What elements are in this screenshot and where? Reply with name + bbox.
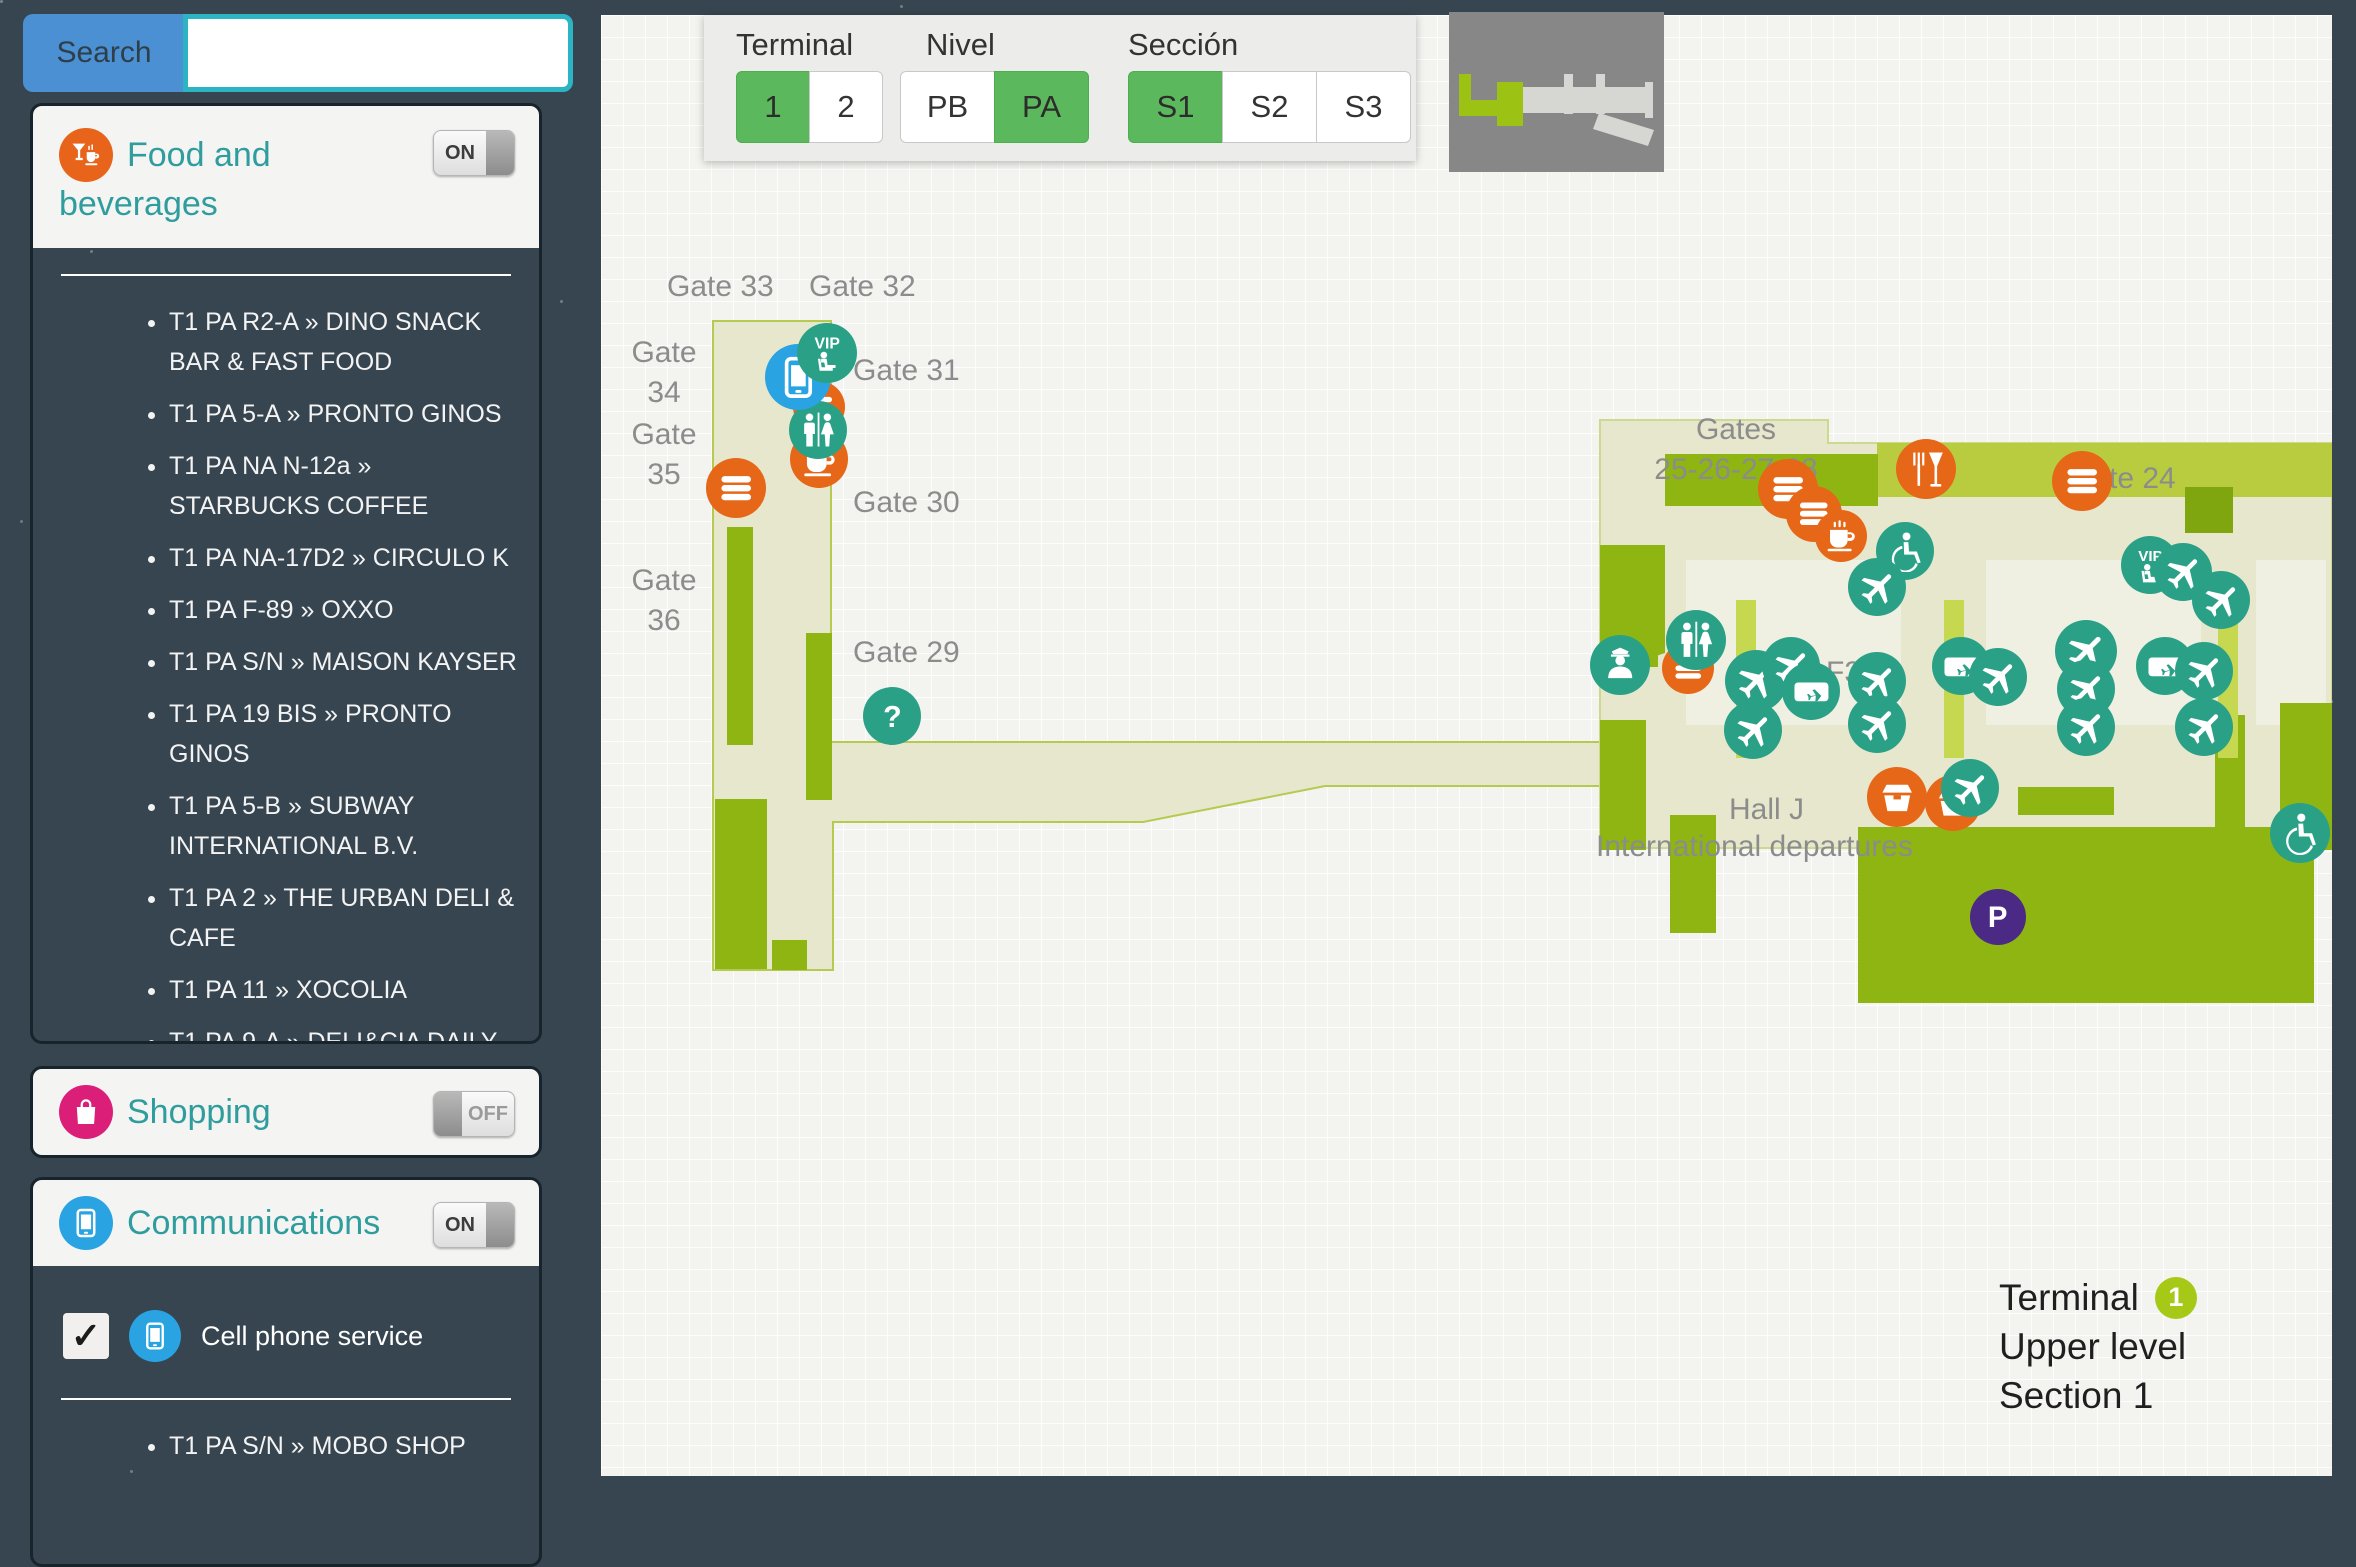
category-title-shopping: Shopping	[127, 1093, 271, 1131]
divider	[61, 1398, 511, 1400]
gate-33-label: Gate 33	[667, 267, 774, 307]
poi-list-item: T1 PA 5-A » PRONTO GINOS	[169, 394, 521, 434]
burger-icon[interactable]	[706, 458, 766, 518]
international-departures-label: International departures	[1596, 827, 1913, 867]
shopping-toggle[interactable]: OFF	[433, 1091, 515, 1137]
airport-map-app: { "search": {"button_label": "Search", "…	[0, 0, 2356, 1490]
svg-text:?: ?	[883, 700, 902, 734]
poi-list-item: T1 PA NA N-12a » STARBUCKS COFFEE	[169, 446, 521, 526]
nivel-group-label: Nivel	[926, 27, 995, 63]
svg-text:VIP: VIP	[814, 335, 839, 352]
category-card-shopping: Shopping OFF	[30, 1066, 542, 1158]
food-drinks-icon	[59, 128, 113, 182]
search-input[interactable]	[183, 14, 573, 92]
hall-j-label: Hall J	[1729, 790, 1804, 830]
gate-32-label: Gate 32	[809, 267, 916, 307]
level-info-label: Upper level	[1999, 1322, 2197, 1371]
parking-icon[interactable]: P	[1970, 889, 2026, 945]
category-card-food: Food and beverages ON T1 PA R2-A » DINO …	[30, 103, 542, 1044]
plane-icon[interactable]	[2057, 698, 2115, 756]
poi-list-item: T1 PA 9-A » DELI&CIA DAILY SMART FOOD	[169, 1022, 521, 1044]
cell-phone-service-checkbox[interactable]: ✓	[63, 1313, 109, 1359]
map-filter-pa[interactable]: PA	[994, 71, 1089, 143]
wheelchair-icon[interactable]	[2270, 803, 2330, 863]
poi-list-item: T1 PA 5-B » SUBWAY INTERNATIONAL B.V.	[169, 786, 521, 866]
gate-36-label: Gate 36	[619, 561, 709, 641]
shopping-bag-icon	[59, 1085, 113, 1139]
subfilter-label: Cell phone service	[201, 1321, 423, 1352]
question-icon[interactable]: ?	[863, 687, 921, 745]
terminal-group-label: Terminal	[736, 27, 853, 63]
gate-30-label: Gate 30	[853, 483, 960, 523]
category-header-shopping[interactable]: Shopping OFF	[33, 1069, 539, 1155]
gate-35-label: Gate 35	[619, 415, 709, 495]
food-results: T1 PA R2-A » DINO SNACK BAR & FAST FOODT…	[33, 248, 539, 1044]
map-filter-1[interactable]: 1	[736, 71, 810, 143]
burger-icon[interactable]	[2052, 451, 2112, 511]
map-filter-s3[interactable]: S3	[1316, 71, 1411, 143]
toggle-state-label: OFF	[462, 1103, 514, 1126]
map-filter-pb[interactable]: PB	[900, 71, 995, 143]
gates-25-28-label: Gates 25-26-27-28	[1611, 410, 1861, 490]
vip-icon[interactable]: VIP	[797, 323, 857, 383]
terminal-info-label: Terminal	[1999, 1273, 2139, 1322]
poi-list-item: T1 PA 11 » XOCOLIA	[169, 970, 521, 1010]
coffee-icon[interactable]	[1815, 510, 1867, 562]
poi-list-item: T1 PA R2-A » DINO SNACK BAR & FAST FOOD	[169, 302, 521, 382]
seccion-button-group: S1S2S3	[1128, 71, 1411, 143]
plane-icon[interactable]	[2192, 571, 2250, 629]
plane-icon[interactable]	[1848, 695, 1906, 753]
current-view-info: Terminal 1 Upper level Section 1	[1999, 1273, 2197, 1420]
map-filter-panel: Terminal Nivel Sección 12 PBPA S1S2S3	[704, 15, 1416, 161]
restroom-icon[interactable]	[1666, 610, 1726, 670]
divider	[61, 274, 511, 276]
restaurant-icon[interactable]	[1896, 439, 1956, 499]
terminal-number-badge: 1	[2155, 1277, 2197, 1319]
smartphone-icon	[59, 1196, 113, 1250]
plane-icon[interactable]	[1848, 558, 1906, 616]
toggle-state-label: ON	[434, 1214, 486, 1237]
poi-list-item: T1 PA S/N » MAISON KAYSER	[169, 642, 521, 682]
plane-icon[interactable]	[1969, 648, 2027, 706]
map-filter-2[interactable]: 2	[809, 71, 883, 143]
gate-31-label: Gate 31	[853, 351, 960, 391]
plane-icon[interactable]	[1724, 701, 1782, 759]
seccion-group-label: Sección	[1128, 27, 1238, 63]
ticket-icon[interactable]	[1782, 662, 1840, 720]
plane-icon[interactable]	[1941, 759, 1999, 817]
terminal-button-group: 12	[736, 71, 883, 143]
communications-results: ✓ Cell phone service T1 PA S/N » MOBO SH…	[33, 1266, 539, 1508]
category-title-communications: Communications	[127, 1204, 380, 1242]
map-filter-s2[interactable]: S2	[1222, 71, 1317, 143]
category-header-communications[interactable]: Communications ON	[33, 1180, 539, 1266]
section-info-label: Section 1	[1999, 1371, 2197, 1420]
subfilter-cell-phone-service: ✓ Cell phone service	[33, 1270, 539, 1362]
takeout-icon[interactable]	[1867, 767, 1927, 827]
poi-list-item: T1 PA 19 BIS » PRONTO GINOS	[169, 694, 521, 774]
communications-poi-list: T1 PA S/N » MOBO SHOP	[33, 1426, 539, 1508]
toggle-knob	[486, 131, 514, 175]
minimap-overview[interactable]	[1449, 12, 1664, 172]
terminal-map-canvas[interactable]: Gate 33 Gate 32 Gate 34 Gate 35 Gate 36 …	[601, 15, 2332, 1476]
food-poi-list: T1 PA R2-A » DINO SNACK BAR & FAST FOODT…	[33, 302, 539, 1044]
poi-list-item: T1 PA F-89 » OXXO	[169, 590, 521, 630]
poi-list-item: T1 PA 2 » THE URBAN DELI & CAFE	[169, 878, 521, 958]
nivel-button-group: PBPA	[900, 71, 1089, 143]
gate-34-label: Gate 34	[619, 333, 709, 413]
poi-list-item: T1 PA S/N » MOBO SHOP	[169, 1426, 521, 1466]
toggle-knob	[434, 1092, 462, 1136]
svg-text:P: P	[1988, 901, 2008, 934]
smartphone-icon	[129, 1310, 181, 1362]
food-toggle[interactable]: ON	[433, 130, 515, 176]
poi-list-item: T1 PA NA-17D2 » CIRCULO K	[169, 538, 521, 578]
map-filter-s1[interactable]: S1	[1128, 71, 1223, 143]
toggle-knob	[486, 1203, 514, 1247]
communications-toggle[interactable]: ON	[433, 1202, 515, 1248]
search-bar: Search	[23, 14, 573, 92]
search-button[interactable]: Search	[23, 14, 185, 92]
category-card-communications: Communications ON ✓ Cell phone service T…	[30, 1177, 542, 1567]
gate-29-label: Gate 29	[853, 633, 960, 673]
category-header-food[interactable]: Food and beverages ON	[33, 106, 539, 248]
toggle-state-label: ON	[434, 142, 486, 165]
plane-icon[interactable]	[2175, 642, 2233, 700]
police-icon[interactable]	[1590, 635, 1650, 695]
plane-icon[interactable]	[2175, 698, 2233, 756]
